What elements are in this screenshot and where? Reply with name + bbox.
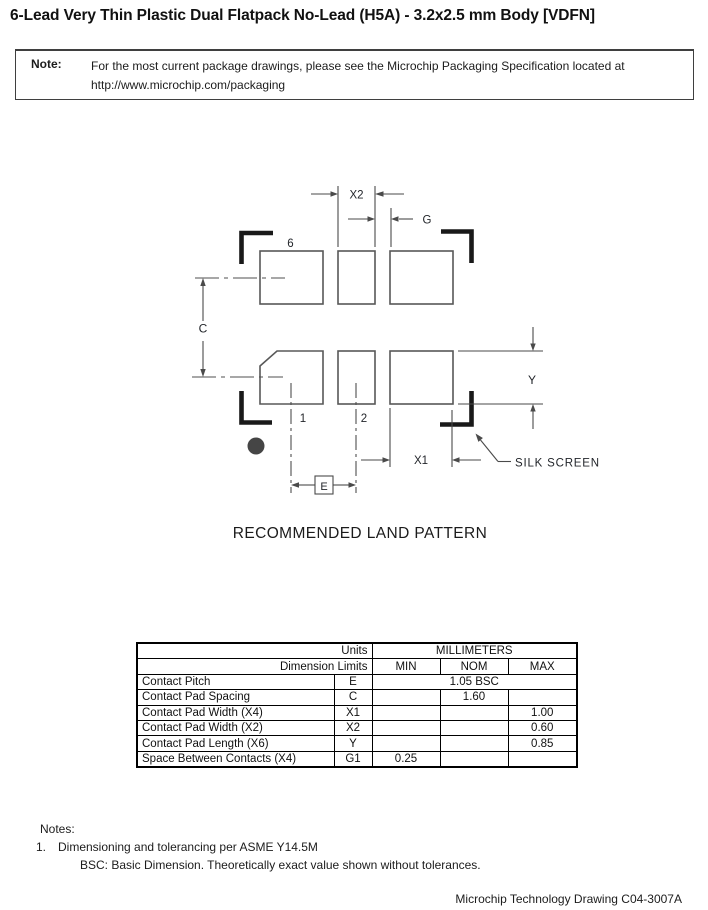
dimensions-table: Units MILLIMETERS Dimension Limits MIN N… [136,642,578,768]
row-symbol-cell: X2 [334,720,372,735]
row-nom-cell [440,736,508,751]
arrow-c-down [200,369,205,377]
row-name-cell: Space Between Contacts (X4) [137,751,334,767]
note-item-1-number: 1. [36,840,58,854]
table-row-units: Units MILLIMETERS [137,643,577,659]
silk-screen-label: SILK SCREEN [515,458,600,470]
land-pattern-drawing: X2 G C Y X1 E 6 1 2 SILK SCREEN [0,0,708,910]
table-row-dimension-limits: Dimension Limits MIN NOM MAX [137,659,577,674]
arrow-c-up [200,278,205,286]
arrow-x1-left [383,457,391,462]
pad-top-left [260,251,323,304]
row-symbol-cell: C [334,690,372,705]
dim-e-label: E [320,481,327,493]
pin-number-6: 6 [287,238,293,250]
pad-top-right [390,251,453,304]
arrow-e-right [349,482,357,487]
row-nom-cell [440,705,508,720]
table-row-contact-pad-width-x2: Contact Pad Width (X2) X2 0.60 [137,720,577,735]
row-nom-cell [440,751,508,767]
dim-g-label: G [423,215,432,227]
note-item-1-text: Dimensioning and tolerancing per ASME Y1… [58,840,318,854]
dim-x2-label: X2 [349,190,363,202]
arrow-e-left [291,482,299,487]
row-symbol-cell: E [334,674,372,689]
row-max-cell [508,751,577,767]
pad-bottom-right [390,351,453,404]
row-symbol-cell: G1 [334,751,372,767]
col-header-min: MIN [372,659,440,674]
row-max-cell: 0.85 [508,736,577,751]
arrow-y-bottom [530,404,535,412]
col-header-nom: NOM [440,659,508,674]
dimension-limits-cell: Dimension Limits [137,659,372,674]
row-min-cell: 0.25 [372,751,440,767]
row-symbol-cell: X1 [334,705,372,720]
row-min-cell [372,736,440,751]
row-max-cell [508,690,577,705]
arrow-silk-leader [476,434,483,442]
silk-leader-diagonal [481,440,499,462]
note-item-1-sub: BSC: Basic Dimension. Theoretically exac… [80,858,481,872]
arrow-g-left [368,216,376,221]
row-name-cell: Contact Pad Length (X6) [137,736,334,751]
row-max-cell: 0.60 [508,720,577,735]
col-header-max: MAX [508,659,577,674]
pin-number-2: 2 [361,413,367,425]
units-label-cell: Units [137,643,372,659]
table-row-contact-pad-width-x4: Contact Pad Width (X4) X1 1.00 [137,705,577,720]
row-name-cell: Contact Pad Spacing [137,690,334,705]
arrow-x2-left [331,191,339,196]
row-name-cell: Contact Pad Width (X2) [137,720,334,735]
table-row-contact-pad-spacing: Contact Pad Spacing C 1.60 [137,690,577,705]
arrow-x2-right [375,191,384,196]
arrow-x1-right [452,457,460,462]
arrow-g-right [391,216,399,221]
row-name-cell: Contact Pad Width (X4) [137,705,334,720]
row-value-cell: 1.05 BSC [372,674,577,689]
row-max-cell: 1.00 [508,705,577,720]
pin-number-1: 1 [300,413,306,425]
pad-top-middle [338,251,375,304]
diagram-caption: RECOMMENDED LAND PATTERN [150,525,570,543]
row-name-cell: Contact Pitch [137,674,334,689]
footer-drawing-number: Microchip Technology Drawing C04-3007A [455,892,682,906]
arrow-y-top [530,344,535,352]
table-row-contact-pad-length: Contact Pad Length (X6) Y 0.85 [137,736,577,751]
table-row-space-between-contacts: Space Between Contacts (X4) G1 0.25 [137,751,577,767]
note-item-1: 1.Dimensioning and tolerancing per ASME … [36,840,318,854]
units-value-cell: MILLIMETERS [372,643,577,659]
row-min-cell [372,720,440,735]
row-nom-cell [440,720,508,735]
row-symbol-cell: Y [334,736,372,751]
row-min-cell [372,705,440,720]
dim-x1-label: X1 [414,455,428,467]
table-row-contact-pitch: Contact Pitch E 1.05 BSC [137,674,577,689]
row-min-cell [372,690,440,705]
row-nom-cell: 1.60 [440,690,508,705]
notes-heading: Notes: [40,822,75,836]
pin1-indicator-dot [248,438,265,455]
dim-c-label: C [199,322,208,336]
dim-y-label: Y [528,373,536,387]
